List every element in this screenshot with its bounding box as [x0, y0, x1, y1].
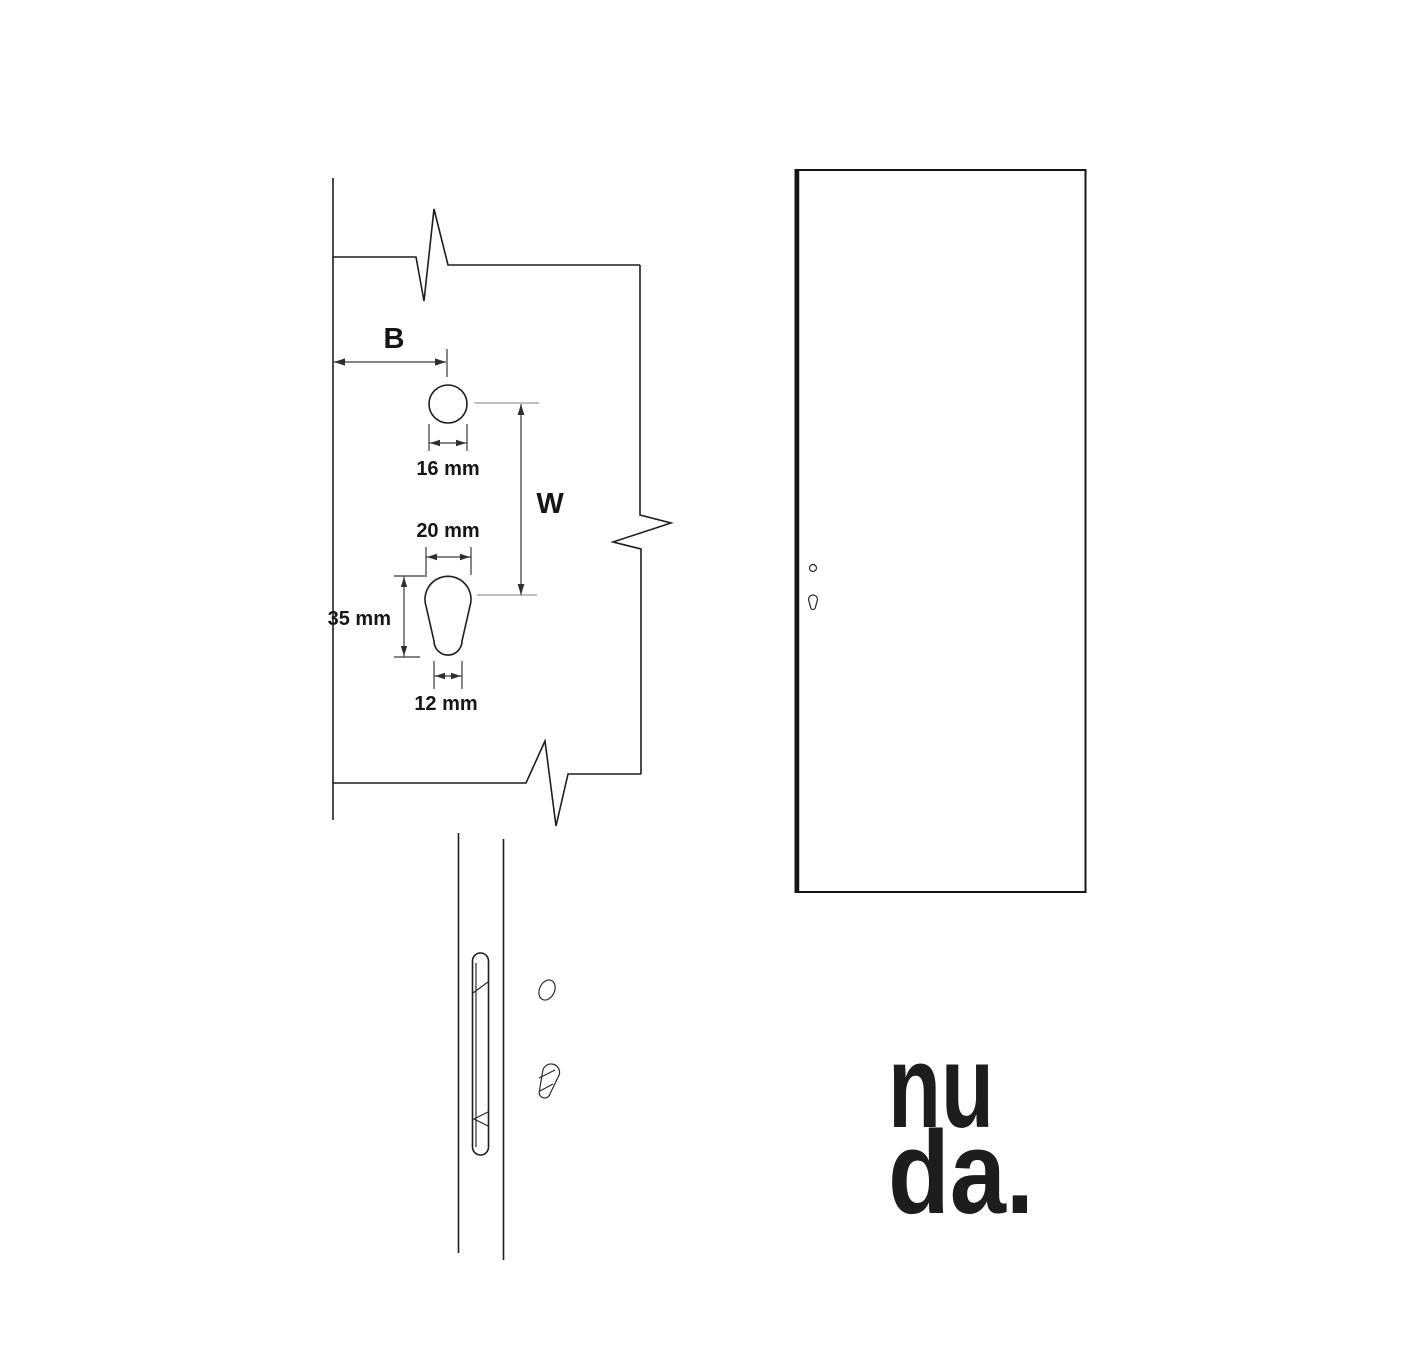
hole-16mm-circle	[429, 385, 467, 423]
spindle-hole-16mm: 16 mm	[416, 385, 479, 480]
brand-logo: nu da.	[888, 1021, 1034, 1239]
b-arrow-right	[435, 358, 446, 365]
dim-12mm-label: 12 mm	[414, 693, 477, 715]
dimension-spacing-w: W	[474, 403, 564, 595]
keyhole-edge-line	[539, 1070, 555, 1078]
dim-20mm-label: 20 mm	[416, 520, 479, 542]
perspective-keyhole-outline	[536, 1062, 561, 1100]
perspective-spindle-hole	[536, 977, 558, 1002]
arrow-left	[427, 554, 437, 560]
dim-16mm-label: 16 mm	[416, 458, 479, 480]
cylinder-keyhole-shape	[425, 576, 471, 655]
technical-drawing-page: B 16 mm W	[0, 0, 1417, 1354]
backset-label: B	[384, 323, 405, 355]
door-edge-view	[459, 833, 562, 1260]
top-break-line	[333, 209, 640, 301]
dimension-backset-b: B	[334, 323, 447, 377]
door-elevation	[796, 170, 1086, 892]
arrow-left	[435, 673, 445, 679]
arrow-right	[460, 554, 470, 560]
drilling-diagram-svg: B 16 mm W	[0, 0, 1417, 1354]
plan-view-outline	[333, 178, 671, 826]
right-break-line	[613, 265, 671, 774]
arrow-right	[456, 440, 466, 446]
door-leaf-rect	[796, 170, 1086, 892]
arrow-left	[430, 440, 440, 446]
logo-line2: da.	[888, 1107, 1034, 1239]
keyhole-edge-line	[540, 1084, 553, 1091]
faceplate-top-detail	[473, 982, 488, 993]
w-arrow-down	[518, 584, 525, 595]
bottom-break-line	[333, 741, 641, 826]
dim-35mm-label: 35 mm	[328, 608, 391, 630]
euro-cylinder-cutout: 20 mm 35 mm 12 mm	[328, 520, 480, 715]
arrow-up	[401, 577, 407, 587]
b-arrow-left	[334, 358, 345, 365]
w-arrow-up	[518, 404, 525, 415]
arrow-right	[451, 673, 461, 679]
spacing-label: W	[536, 488, 564, 520]
perspective-cylinder-hole	[536, 1062, 561, 1100]
arrow-down	[401, 646, 407, 656]
